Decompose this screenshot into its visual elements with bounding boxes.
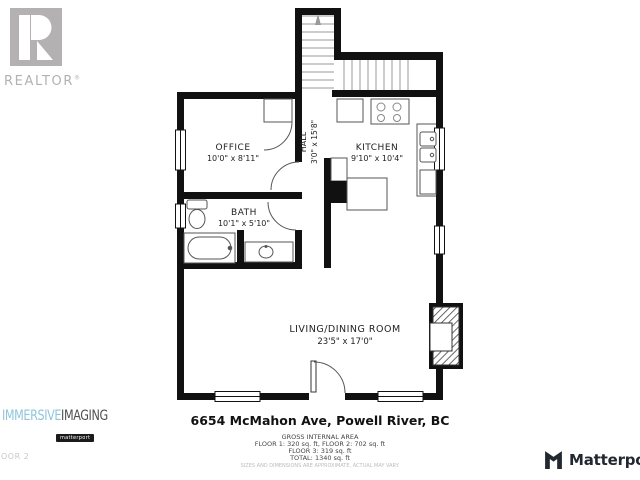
closet-door-arc bbox=[264, 122, 292, 150]
floor-plan-page: OFFICE 10'0" x 8'11" KITCHEN 9'10" x 10'… bbox=[0, 0, 640, 480]
hall-label: HALL bbox=[299, 131, 308, 152]
front-door bbox=[309, 361, 345, 401]
office-door-arc bbox=[271, 162, 299, 190]
fireplace bbox=[429, 303, 463, 369]
bath-label: BATH bbox=[231, 208, 257, 218]
office-label: OFFICE bbox=[215, 143, 250, 153]
stove bbox=[371, 99, 409, 124]
bath-door-arc bbox=[268, 202, 296, 230]
matterport-wordmark: Matterport bbox=[569, 451, 640, 469]
office-fixtures bbox=[264, 99, 299, 190]
property-address: 6654 McMahon Ave, Powell River, BC bbox=[0, 413, 640, 428]
firebox bbox=[430, 323, 452, 351]
realtor-logo: REALTOR® bbox=[10, 8, 100, 89]
registered-mark-icon: ® bbox=[74, 75, 80, 82]
chimney-block bbox=[328, 181, 347, 203]
bath-dims: 10'1" x 5'10" bbox=[218, 219, 270, 228]
realtor-r-icon bbox=[10, 8, 62, 68]
realtor-wordmark: REALTOR® bbox=[4, 74, 100, 89]
room-labels: OFFICE 10'0" x 8'11" KITCHEN 9'10" x 10'… bbox=[207, 120, 403, 347]
front-door-arc bbox=[314, 362, 345, 393]
office-dims: 10'0" x 8'11" bbox=[207, 154, 259, 163]
kitchen-label: KITCHEN bbox=[356, 143, 399, 153]
kitchen-island bbox=[347, 178, 387, 210]
kitchen-dims: 9'10" x 10'4" bbox=[351, 154, 403, 163]
kitchen-cabinet bbox=[337, 99, 363, 122]
bathtub-basin bbox=[188, 237, 231, 259]
matterport-logo: Matterport bbox=[543, 449, 640, 470]
bath-sink-tap bbox=[265, 246, 267, 248]
toilet-tank bbox=[187, 200, 207, 209]
tub-faucet bbox=[228, 246, 232, 250]
counter-cabinet bbox=[420, 170, 436, 194]
door-leaf bbox=[311, 361, 316, 392]
living-dining-label: LIVING/DINING ROOM bbox=[289, 324, 400, 335]
walls bbox=[177, 8, 443, 400]
hall-dims: 3'0" x 15'8" bbox=[310, 120, 319, 164]
office-closet bbox=[264, 99, 292, 122]
hall-side-box bbox=[331, 158, 347, 181]
toilet-bowl bbox=[189, 210, 205, 229]
living-dining-dims: 23'5" x 17'0" bbox=[317, 337, 372, 347]
matterport-m-icon bbox=[543, 449, 564, 470]
